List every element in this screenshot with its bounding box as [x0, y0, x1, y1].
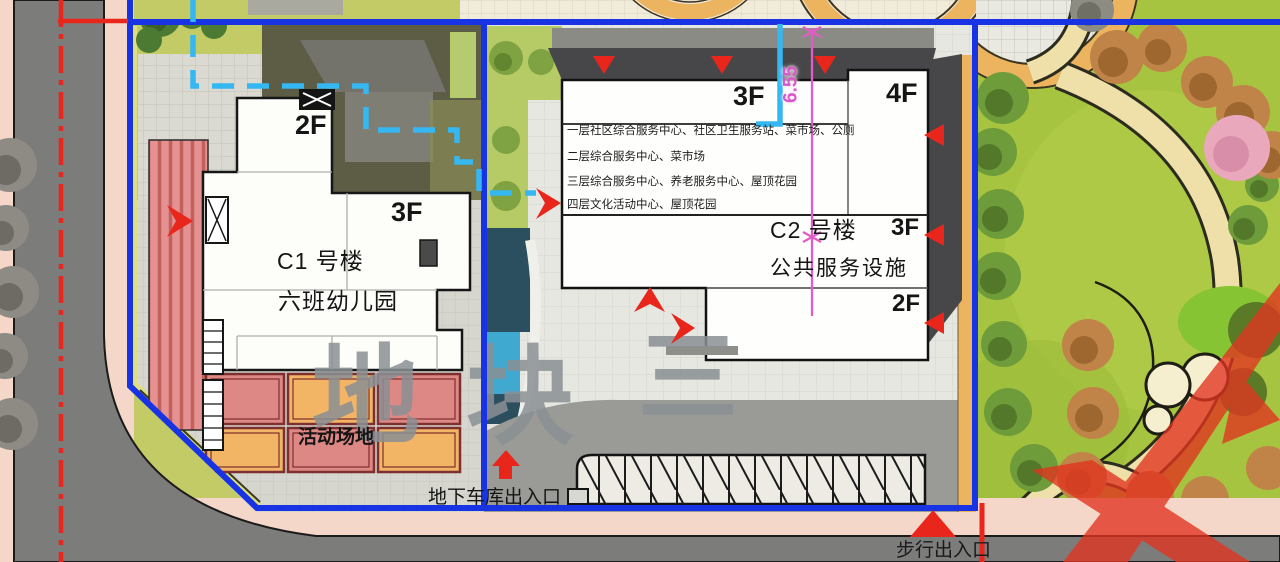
ramp [149, 140, 208, 430]
water-feature-shade [484, 228, 530, 332]
site-plan: 地 块 三 2F 3 [0, 0, 1280, 562]
park [926, 0, 1280, 524]
entrance-canopy-icon [299, 89, 335, 110]
watermark-char: 地 [312, 336, 420, 457]
arrow-garage-stem [499, 466, 512, 479]
c2-roof-east [928, 54, 962, 344]
watermark-char: 三 [638, 322, 738, 434]
site-plan-canvas: 地 块 三 [0, 0, 1280, 562]
top-path [248, 0, 343, 15]
